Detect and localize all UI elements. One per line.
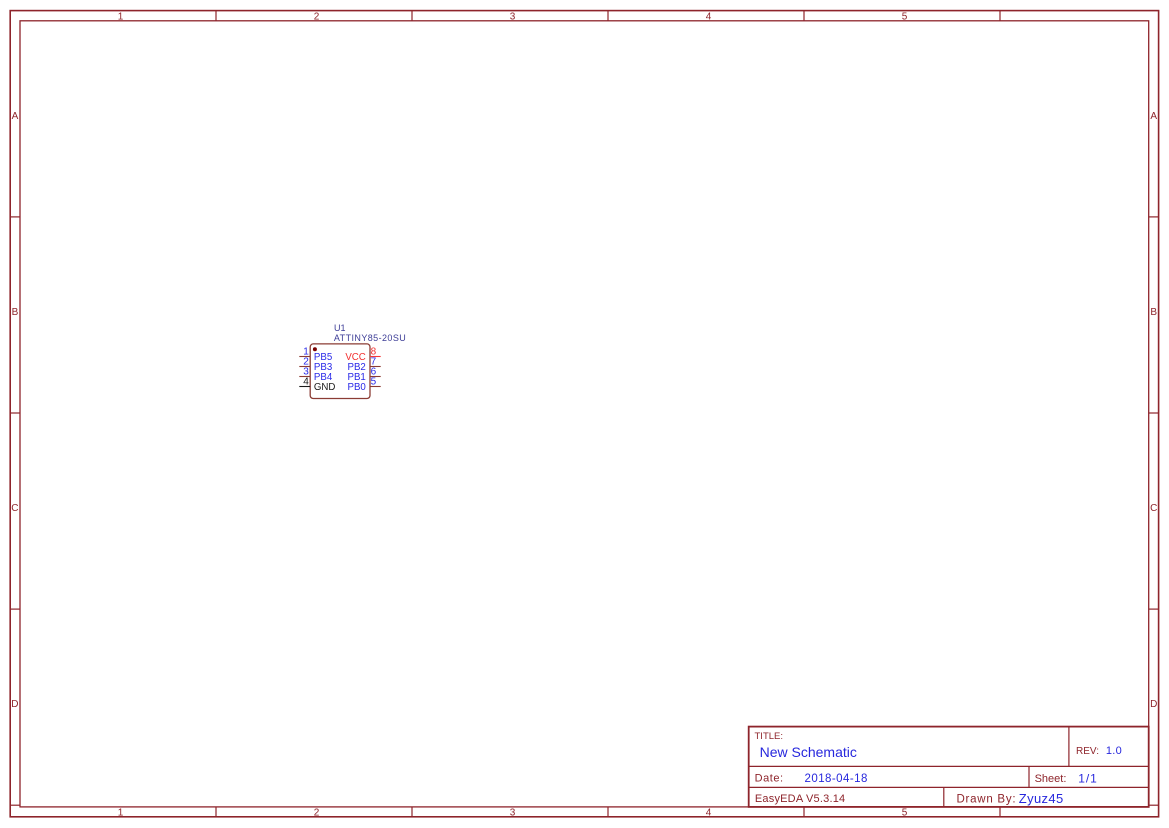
svg-text:Zyuz45: Zyuz45 — [1019, 791, 1064, 806]
svg-text:D: D — [11, 699, 18, 710]
svg-text:B: B — [12, 307, 19, 318]
svg-text:1: 1 — [118, 807, 124, 818]
svg-text:2: 2 — [314, 807, 320, 818]
svg-text:New Schematic: New Schematic — [760, 744, 857, 760]
svg-text:2018-04-18: 2018-04-18 — [805, 773, 868, 785]
svg-text:1/1: 1/1 — [1078, 772, 1097, 786]
svg-text:Date:: Date: — [755, 773, 784, 785]
svg-text:1.0: 1.0 — [1106, 745, 1122, 757]
svg-text:D: D — [1150, 699, 1157, 710]
svg-text:B: B — [1150, 307, 1157, 318]
svg-text:ATTINY85-20SU: ATTINY85-20SU — [334, 333, 406, 343]
svg-text:5: 5 — [902, 807, 908, 818]
svg-text:C: C — [1150, 503, 1157, 514]
svg-text:5: 5 — [902, 11, 908, 22]
svg-text:3: 3 — [510, 11, 516, 22]
svg-text:5: 5 — [371, 377, 377, 388]
svg-text:REV:: REV: — [1076, 746, 1099, 757]
svg-text:PB0: PB0 — [347, 382, 366, 393]
svg-text:2: 2 — [314, 11, 320, 22]
svg-text:4: 4 — [706, 807, 712, 818]
svg-text:1: 1 — [118, 11, 124, 22]
svg-text:TITLE:: TITLE: — [755, 731, 784, 742]
svg-text:A: A — [1150, 111, 1157, 122]
svg-text:A: A — [12, 111, 19, 122]
svg-text:4: 4 — [706, 11, 712, 22]
svg-text:U1: U1 — [334, 323, 346, 333]
svg-text:GND: GND — [314, 382, 336, 393]
svg-text:Sheet:: Sheet: — [1035, 773, 1067, 785]
svg-text:3: 3 — [510, 807, 516, 818]
svg-text:Drawn By:: Drawn By: — [957, 793, 1017, 805]
svg-text:4: 4 — [303, 376, 309, 387]
svg-text:C: C — [11, 503, 18, 514]
svg-text:EasyEDA V5.3.14: EasyEDA V5.3.14 — [755, 793, 845, 805]
